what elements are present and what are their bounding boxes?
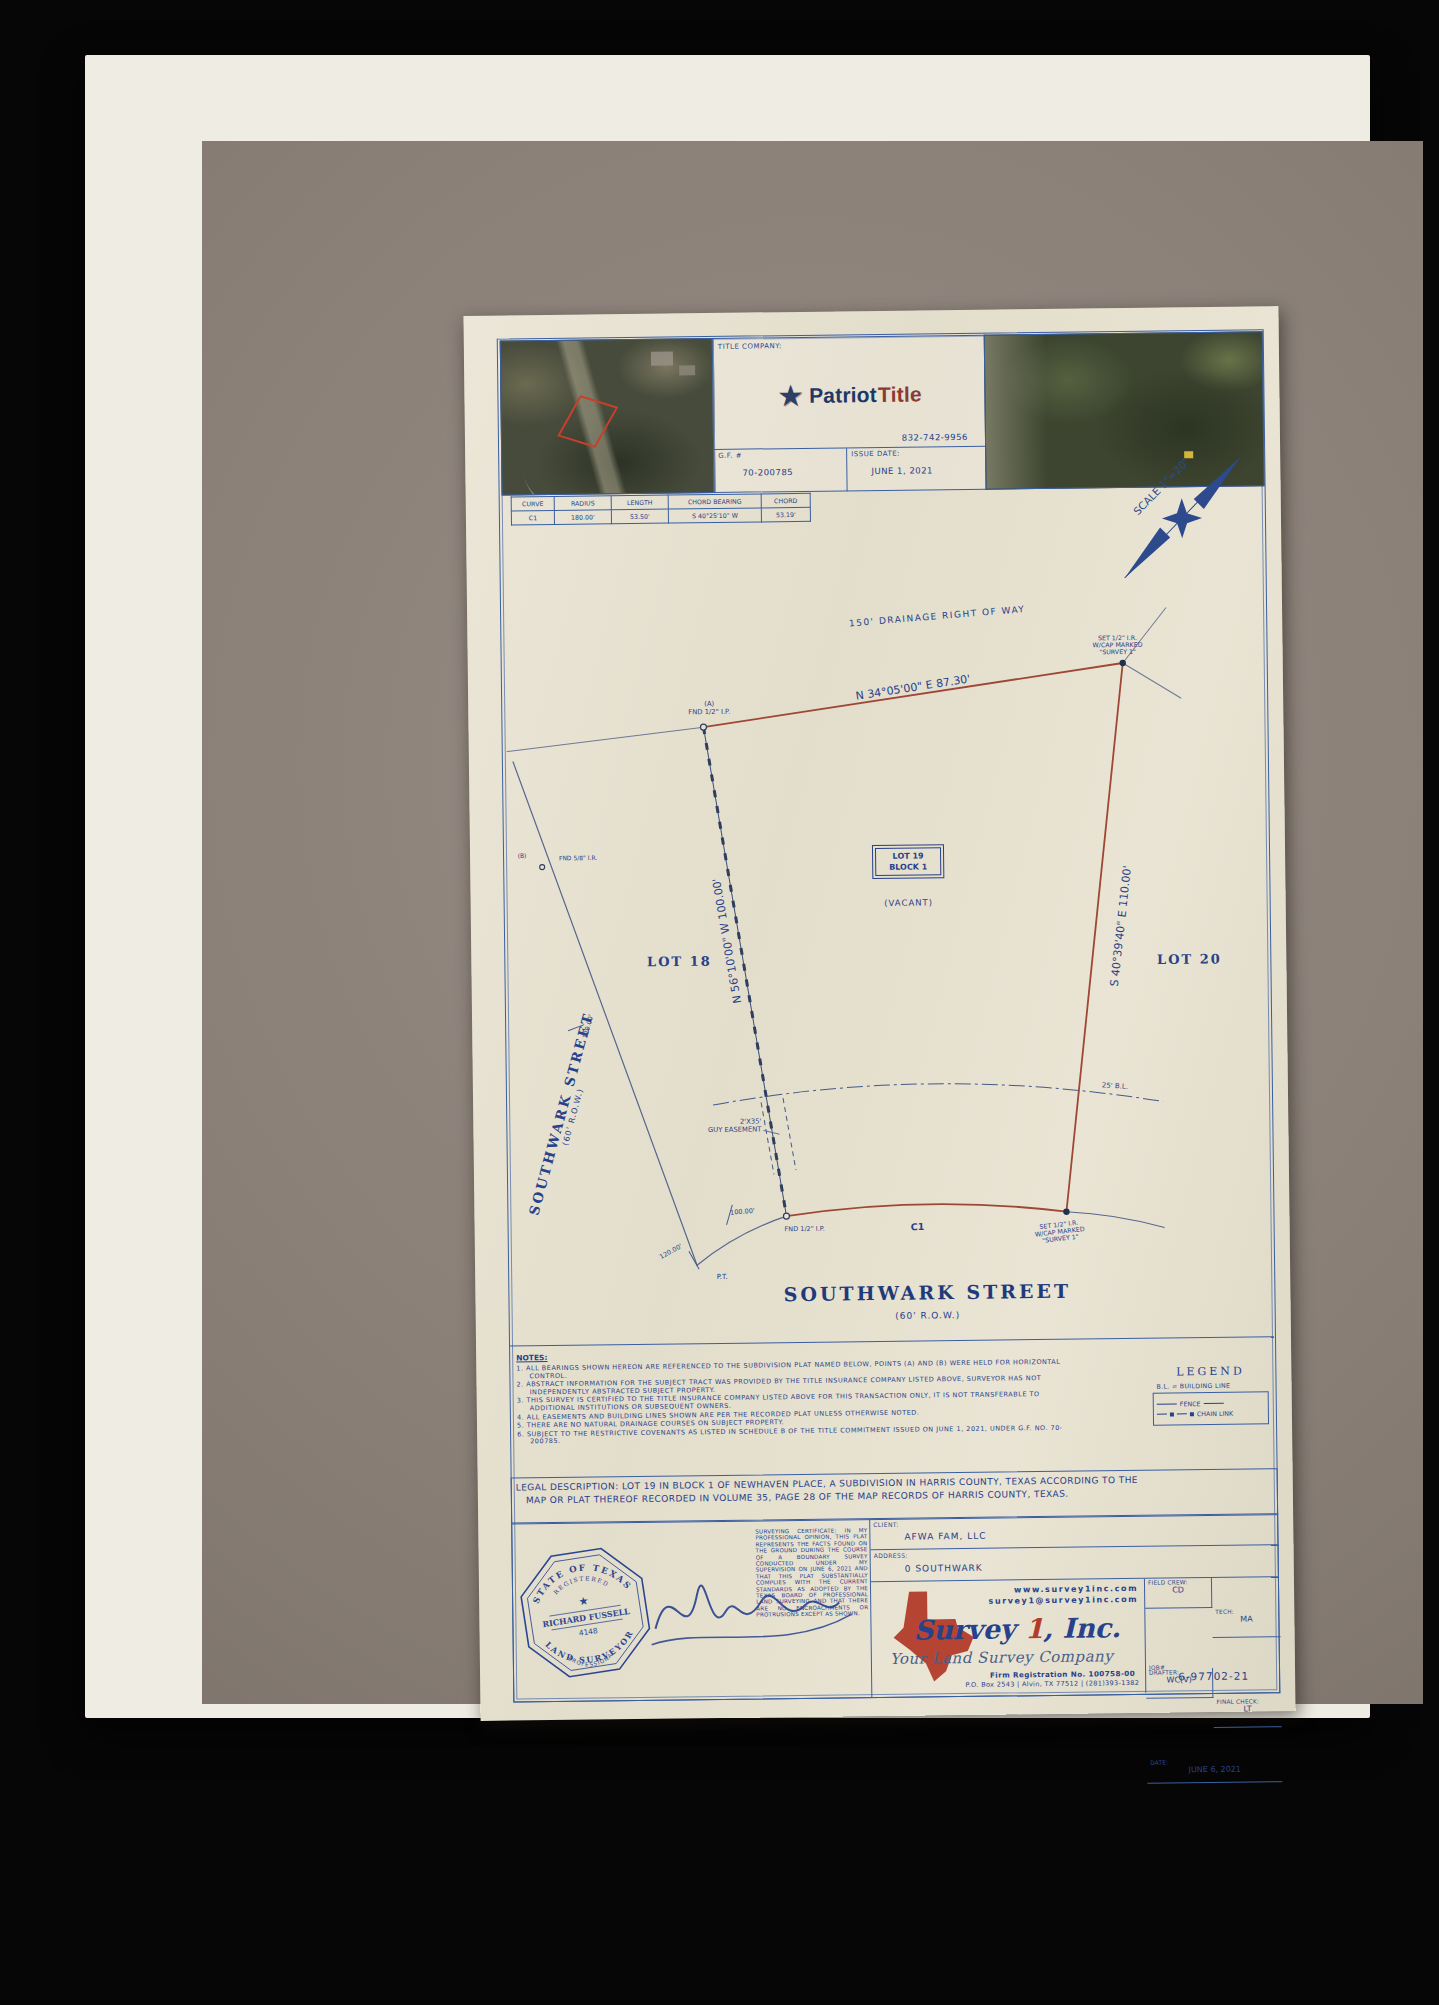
guy-easement-line2: GUY EASEMENT [695,1126,761,1135]
final-check-value: LT [1213,1704,1281,1714]
seal-number: 4148 [578,1626,598,1638]
corner-a-desc: FND 1/2" I.P. [664,708,754,717]
tech-cell: TECH: MA [1212,1607,1280,1638]
lot-19-box: LOT 19 BLOCK 1 [872,844,944,879]
marker-b-tag: (B) [518,852,527,859]
corner-c-label: FND 1/2" I.P. [785,1225,825,1233]
corner-a-label: (A) FND 1/2" I.P. [664,701,754,717]
chain-link-symbol [1157,1414,1167,1415]
pt-label: P.T. [717,1273,728,1281]
boundary-south-curve-c1 [786,1202,1066,1216]
corner-b-line3: "SURVEY 1" [1073,648,1163,656]
photo-white-frame: TITLE COMPANY: ★ PatriotTitle 832-742-99… [85,55,1370,1718]
survey1-numeral: 1 [1015,1613,1044,1644]
field-crew-cell: FIELD CREW: CD [1145,1578,1212,1609]
notes-section: NOTES: 1. ALL BEARINGS SHOWN HEREON ARE … [516,1347,1077,1448]
legend-box: FENCE CHAIN LINK [1153,1391,1269,1425]
date-cell: DATE: JUNE 6, 2021 [1147,1757,1282,1784]
client-value: AFWA FAM, LLC [904,1531,986,1542]
footer-block: STATE OF TEXAS REGISTERED ★ RICHARD FUSS… [511,1513,1280,1702]
corner-b-label: SET 1/2" I.R. W/CAP MARKED "SURVEY 1" [1072,634,1162,656]
fence-line-symbol [1157,1403,1177,1404]
client-label: CLIENT: [873,1521,899,1528]
seal-star-icon: ★ [578,1594,590,1608]
survey1-inc: , Inc. [1043,1612,1120,1644]
job-cell: JOB# 6-97702-21 [1146,1662,1281,1693]
street-bottom-name: SOUTHWARK STREET [784,1280,1072,1306]
final-check-cell: FINAL CHECK: LT [1213,1697,1281,1728]
survey1-contact: www.survey1inc.com survey1@survey1inc.co… [988,1584,1138,1607]
survey1-word: Survey [913,1613,1015,1645]
legend: LEGEND B.L. = BUILDING LINE FENCE [1152,1364,1269,1425]
footer-right-column: CLIENT: AFWA FAM, LLC ADDRESS: 0 SOUTHWA… [869,1514,1280,1697]
guy-easement-lines [761,1098,796,1174]
monument-c-found [783,1213,789,1219]
address-row: ADDRESS: 0 SOUTHWARK [871,1545,1279,1582]
survey-paper: TITLE COMPANY: ★ PatriotTitle 832-742-99… [463,306,1295,1721]
legend-chain-link-label: CHAIN LINK [1197,1410,1233,1417]
survey1-and-crew: www.survey1inc.com survey1@survey1inc.co… [871,1577,1280,1696]
survey1-address-line: P.O. Box 2543 | Alvin, TX 77512 | (281)3… [965,1679,1139,1689]
surveyor-signature [633,1554,869,1672]
marker-b-desc: FND 5/8" I.R. [559,854,597,861]
crew-table: FIELD CREW: CD TECH: MA DRAFTER: WC(V) [1144,1577,1281,1693]
client-row: CLIENT: AFWA FAM, LLC [870,1514,1278,1550]
guy-easement-leader [763,1130,779,1134]
lot-19-line1: LOT 19 [876,850,940,862]
address-label: ADDRESS: [874,1552,908,1559]
fence-line-symbol [1203,1403,1223,1404]
building-line-label: 25' B.L. [1102,1081,1129,1090]
legend-fence-row: FENCE [1157,1399,1265,1407]
lot-18-label: LOT 18 [647,954,712,970]
building-line [713,1081,1163,1107]
chain-link-symbol [1190,1412,1194,1416]
seal-name: RICHARD FUSSELL [542,1606,631,1629]
monument-a-found [700,724,706,730]
lot-19-line2: BLOCK 1 [876,861,940,873]
survey1-email: survey1@survey1inc.com [988,1594,1138,1606]
survey1-block: www.survey1inc.com survey1@survey1inc.co… [871,1579,1145,1696]
legend-title: LEGEND [1152,1364,1268,1378]
monument-d-set [1063,1208,1069,1214]
chain-link-symbol [1170,1412,1174,1416]
tech-value: MA [1212,1614,1280,1624]
survey1-company-name: Survey 1, Inc. [913,1612,1120,1646]
chain-link-symbol [1177,1413,1187,1414]
job-value: 6-97702-21 [1146,1669,1281,1683]
monument-b-ref [540,865,545,870]
vacant-label: (VACANT) [884,897,933,908]
curve-c1-label: C1 [911,1221,925,1232]
street-bottom-row: (60' R.O.W.) [895,1310,960,1321]
guy-easement-label: 2'X35' GUY EASEMENT [695,1118,761,1134]
legend-fence-label: FENCE [1180,1400,1201,1407]
survey1-firm-registration: Firm Registration No. 100758-00 [990,1669,1135,1680]
legend-building-line: B.L. = BUILDING LINE [1157,1381,1269,1389]
tie-line-a [507,727,704,751]
address-value: 0 SOUTHWARK [905,1563,983,1574]
photo-of-survey-document: TITLE COMPANY: ★ PatriotTitle 832-742-99… [0,0,1439,2005]
field-crew-value: CD [1145,1585,1211,1595]
boundary-north [703,663,1124,727]
desk-surface: TITLE COMPANY: ★ PatriotTitle 832-742-99… [202,141,1423,1704]
survey1-tagline: Your Land Survey Company [890,1647,1113,1668]
lot-20-label: LOT 20 [1157,951,1222,967]
legend-chain-link-row: CHAIN LINK [1157,1409,1265,1417]
date-value: JUNE 6, 2021 [1147,1764,1282,1775]
